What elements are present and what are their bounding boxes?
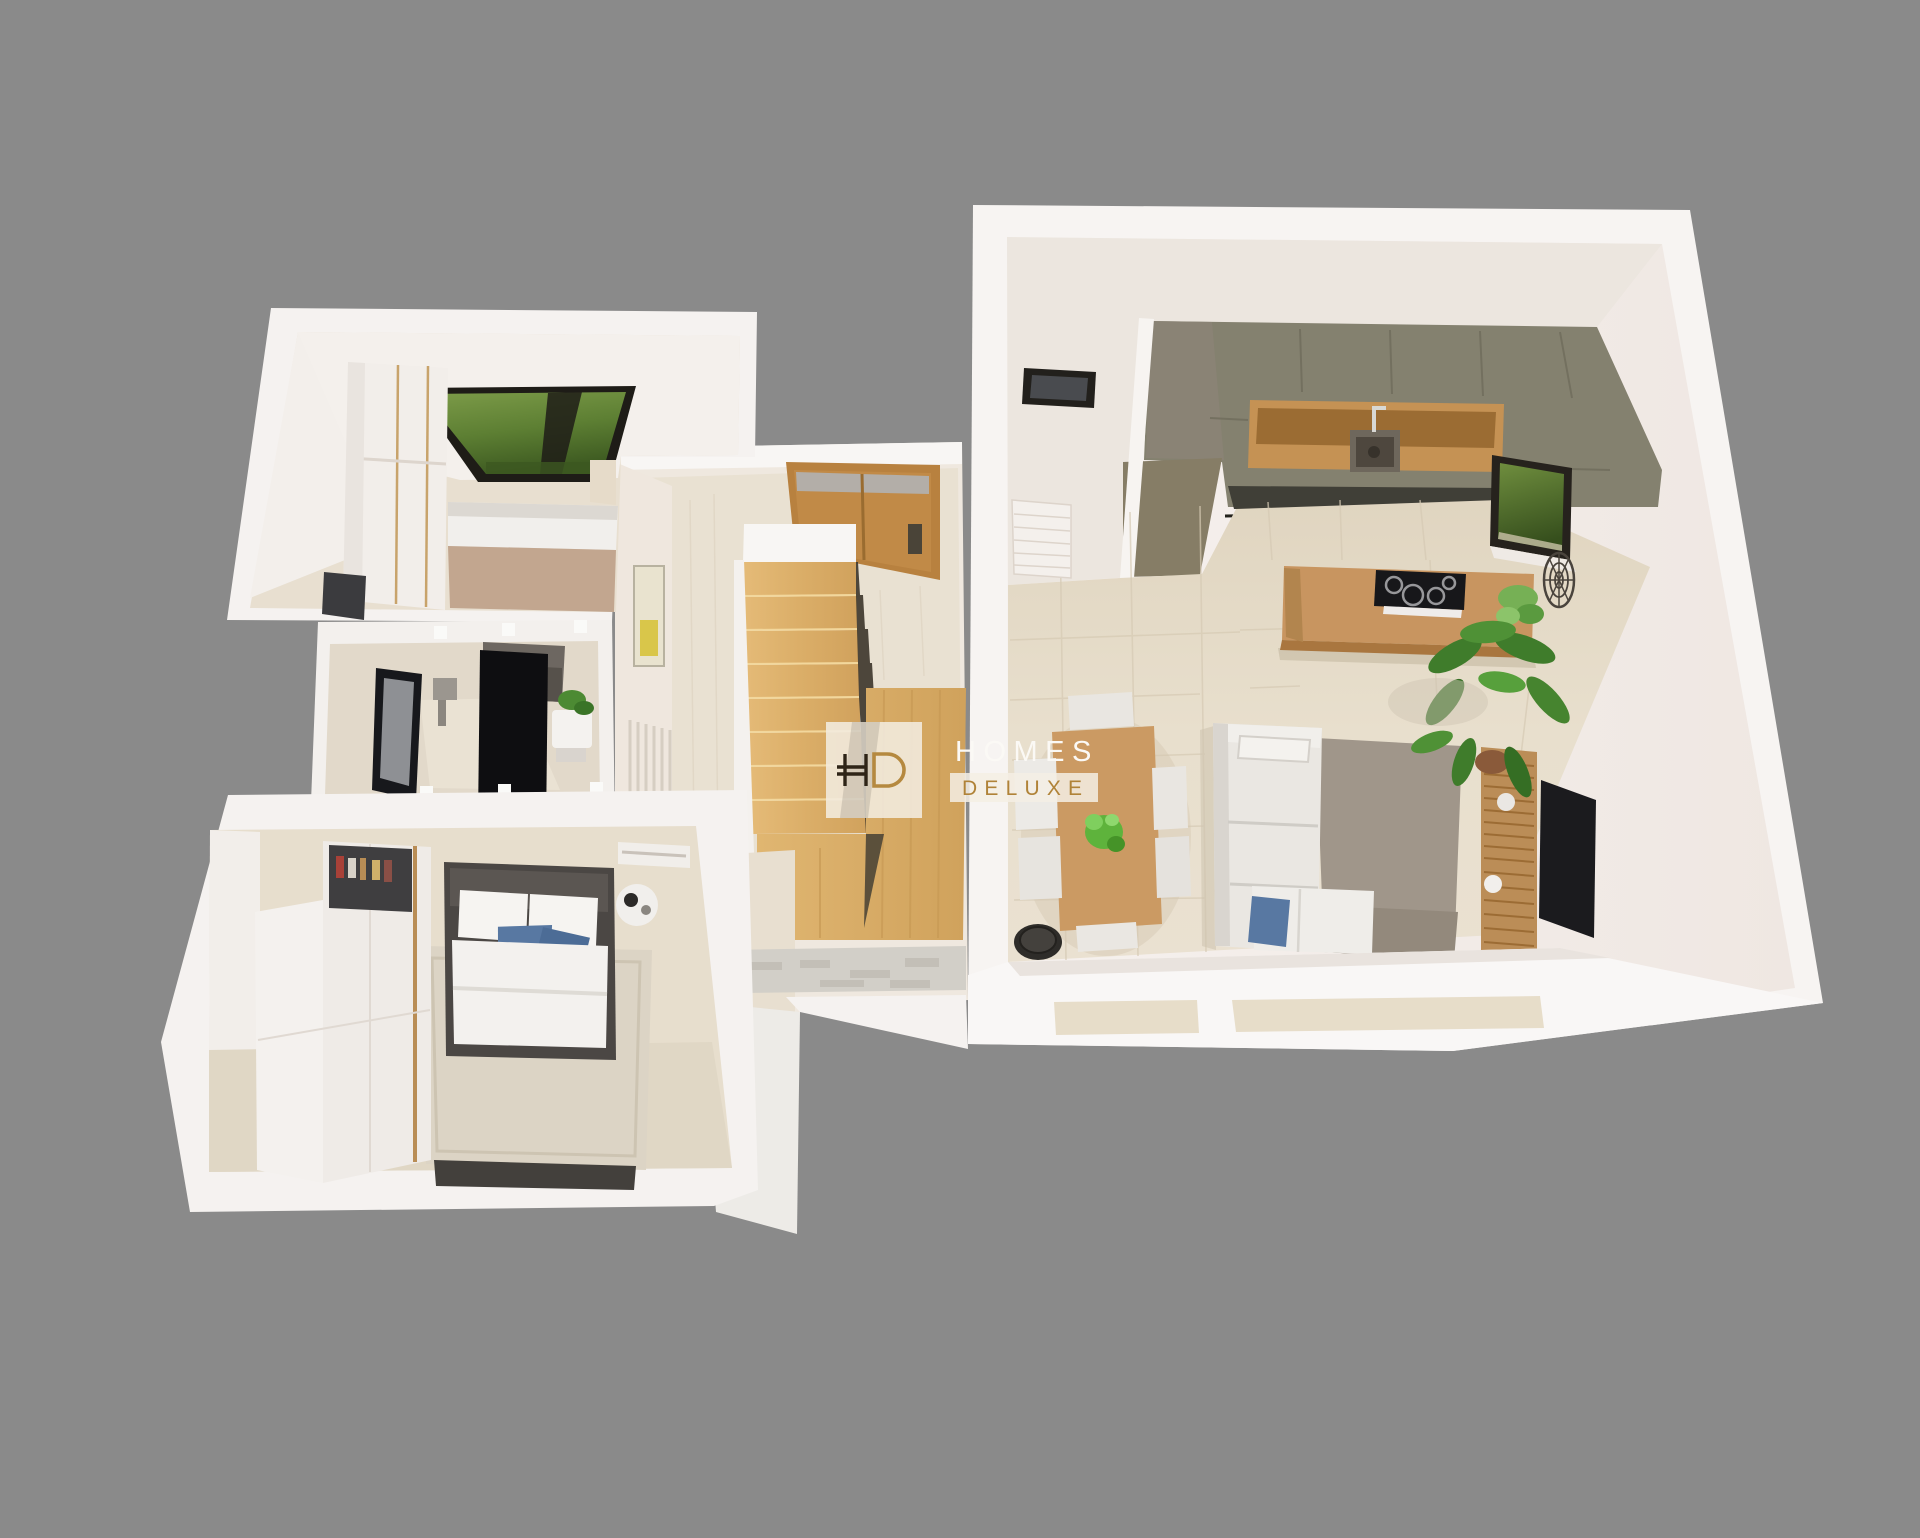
svg-text:DELUXE: DELUXE: [962, 777, 1089, 800]
svg-text:HOMES: HOMES: [955, 736, 1099, 768]
